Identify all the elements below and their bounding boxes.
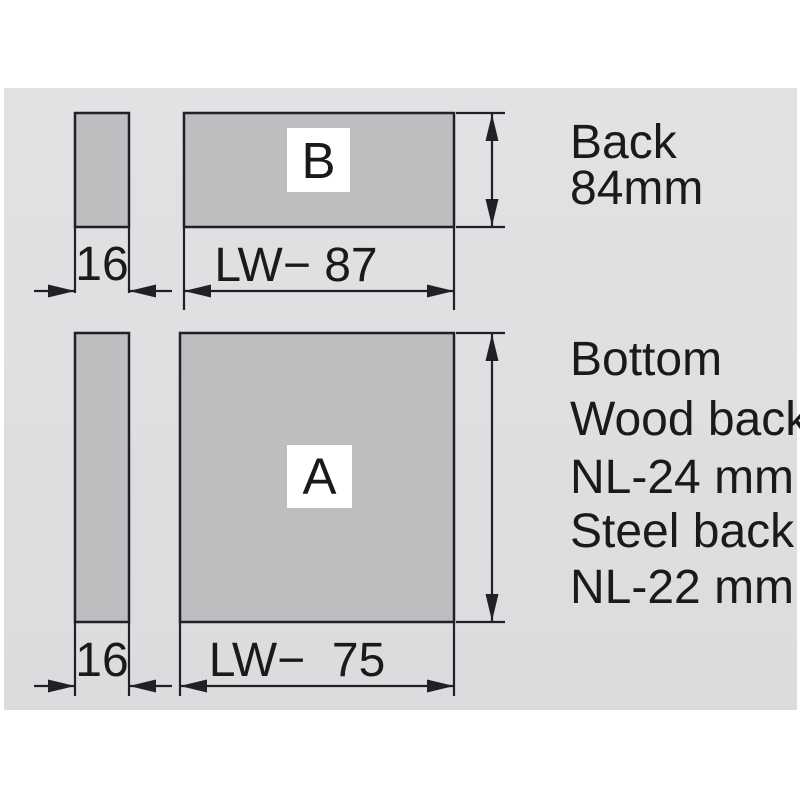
drawer-panel-dimension-diagram: 16 B LW− 87 Back 84mm 16 <box>0 0 800 800</box>
panel-b-label: B <box>301 132 335 189</box>
bottom-note-line-4: Steel back <box>570 505 795 558</box>
diagram-svg: 16 B LW− 87 Back 84mm 16 <box>0 0 800 800</box>
top-width-dim-label: LW− 87 <box>214 239 377 292</box>
panel-a-label: A <box>302 448 336 505</box>
bottom-note-line-1: Bottom <box>570 333 722 386</box>
bottom-note-line-2: Wood back <box>570 393 800 446</box>
bottom-width-dim-label: LW− 75 <box>209 634 386 687</box>
top-spacer-thickness-label: 16 <box>75 238 128 291</box>
top-spacer-panel <box>75 113 129 227</box>
top-note-line-2: 84mm <box>570 162 703 215</box>
bottom-spacer-thickness-label: 16 <box>75 634 128 687</box>
bottom-spacer-panel <box>75 333 129 622</box>
bottom-note-line-5: NL-22 mm <box>570 561 794 614</box>
bottom-note-line-3: NL-24 mm <box>570 451 794 504</box>
